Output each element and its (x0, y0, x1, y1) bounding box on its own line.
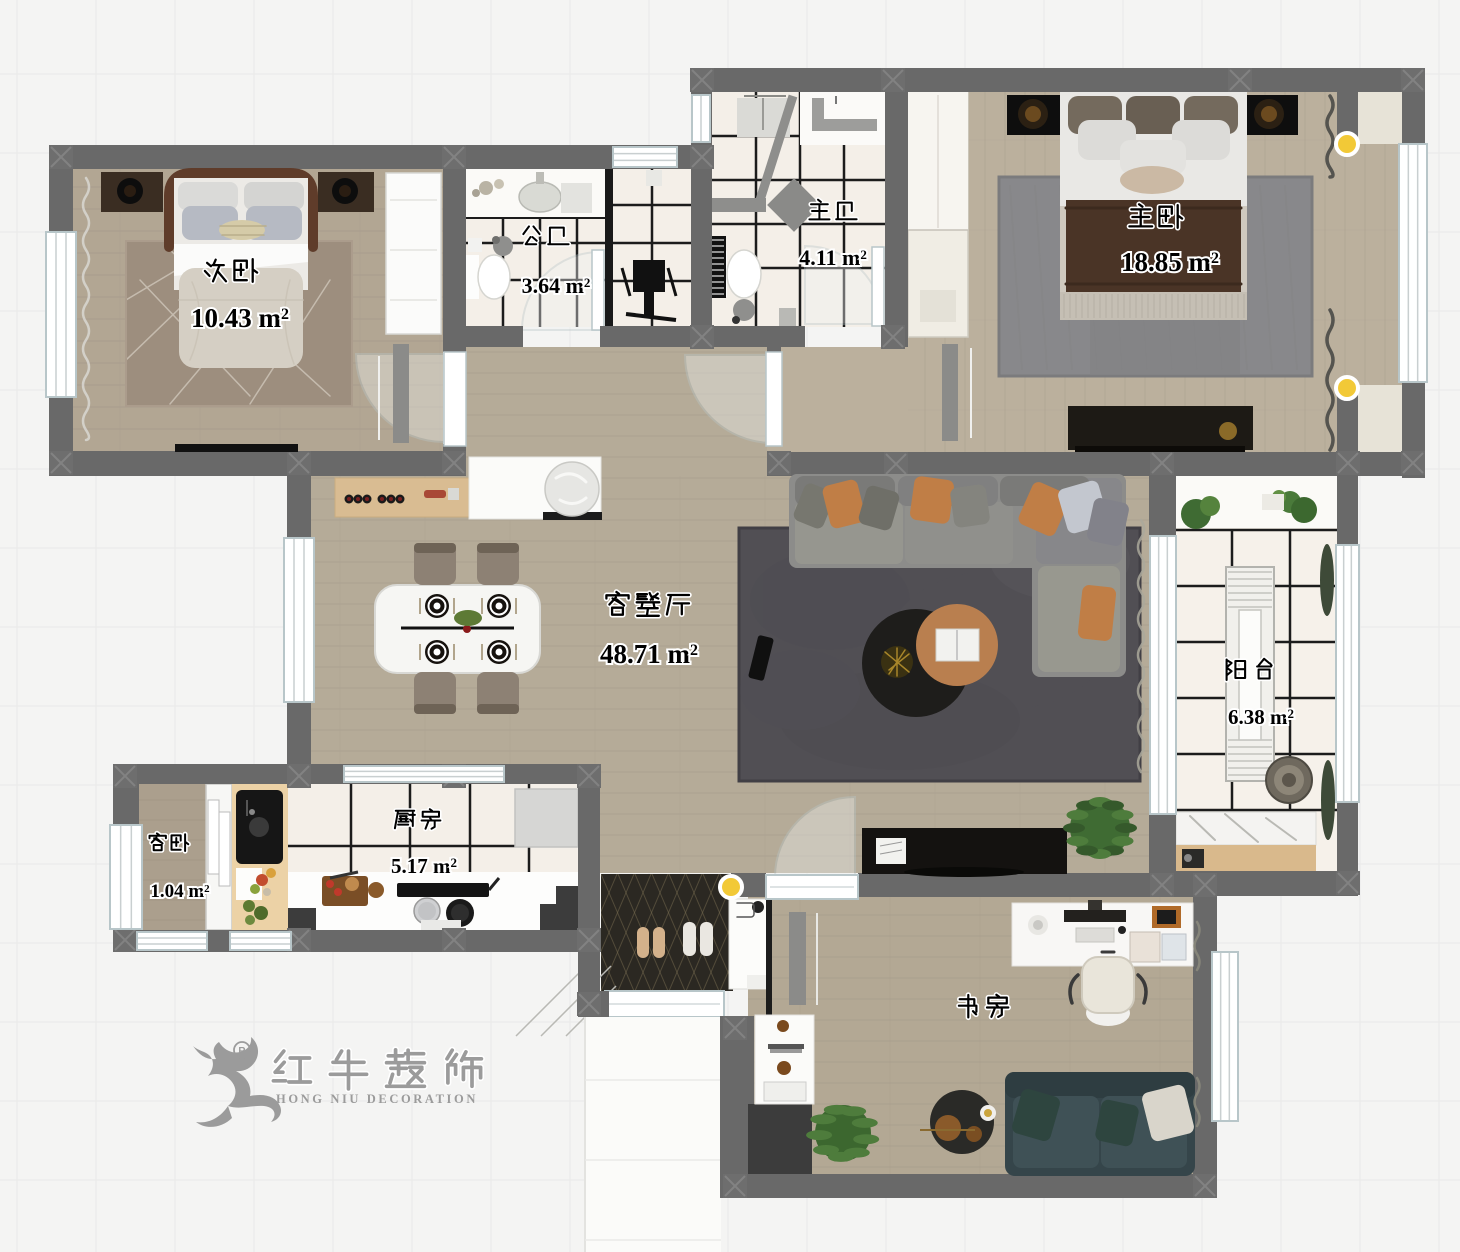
svg-text:10.43 m2: 10.43 m2 (191, 303, 289, 333)
svg-text:R: R (238, 1046, 246, 1057)
svg-text:HONG NIU DECORATION: HONG NIU DECORATION (276, 1092, 478, 1106)
svg-text:1.04 m2: 1.04 m2 (150, 881, 210, 902)
svg-text:3.64 m2: 3.64 m2 (522, 273, 591, 298)
svg-text:5.17 m2: 5.17 m2 (391, 854, 457, 878)
svg-text:18.85 m2: 18.85 m2 (1121, 247, 1219, 277)
svg-text:4.11 m2: 4.11 m2 (799, 245, 867, 270)
svg-text:6.38 m2: 6.38 m2 (1228, 705, 1294, 729)
svg-text:48.71 m2: 48.71 m2 (600, 639, 698, 669)
